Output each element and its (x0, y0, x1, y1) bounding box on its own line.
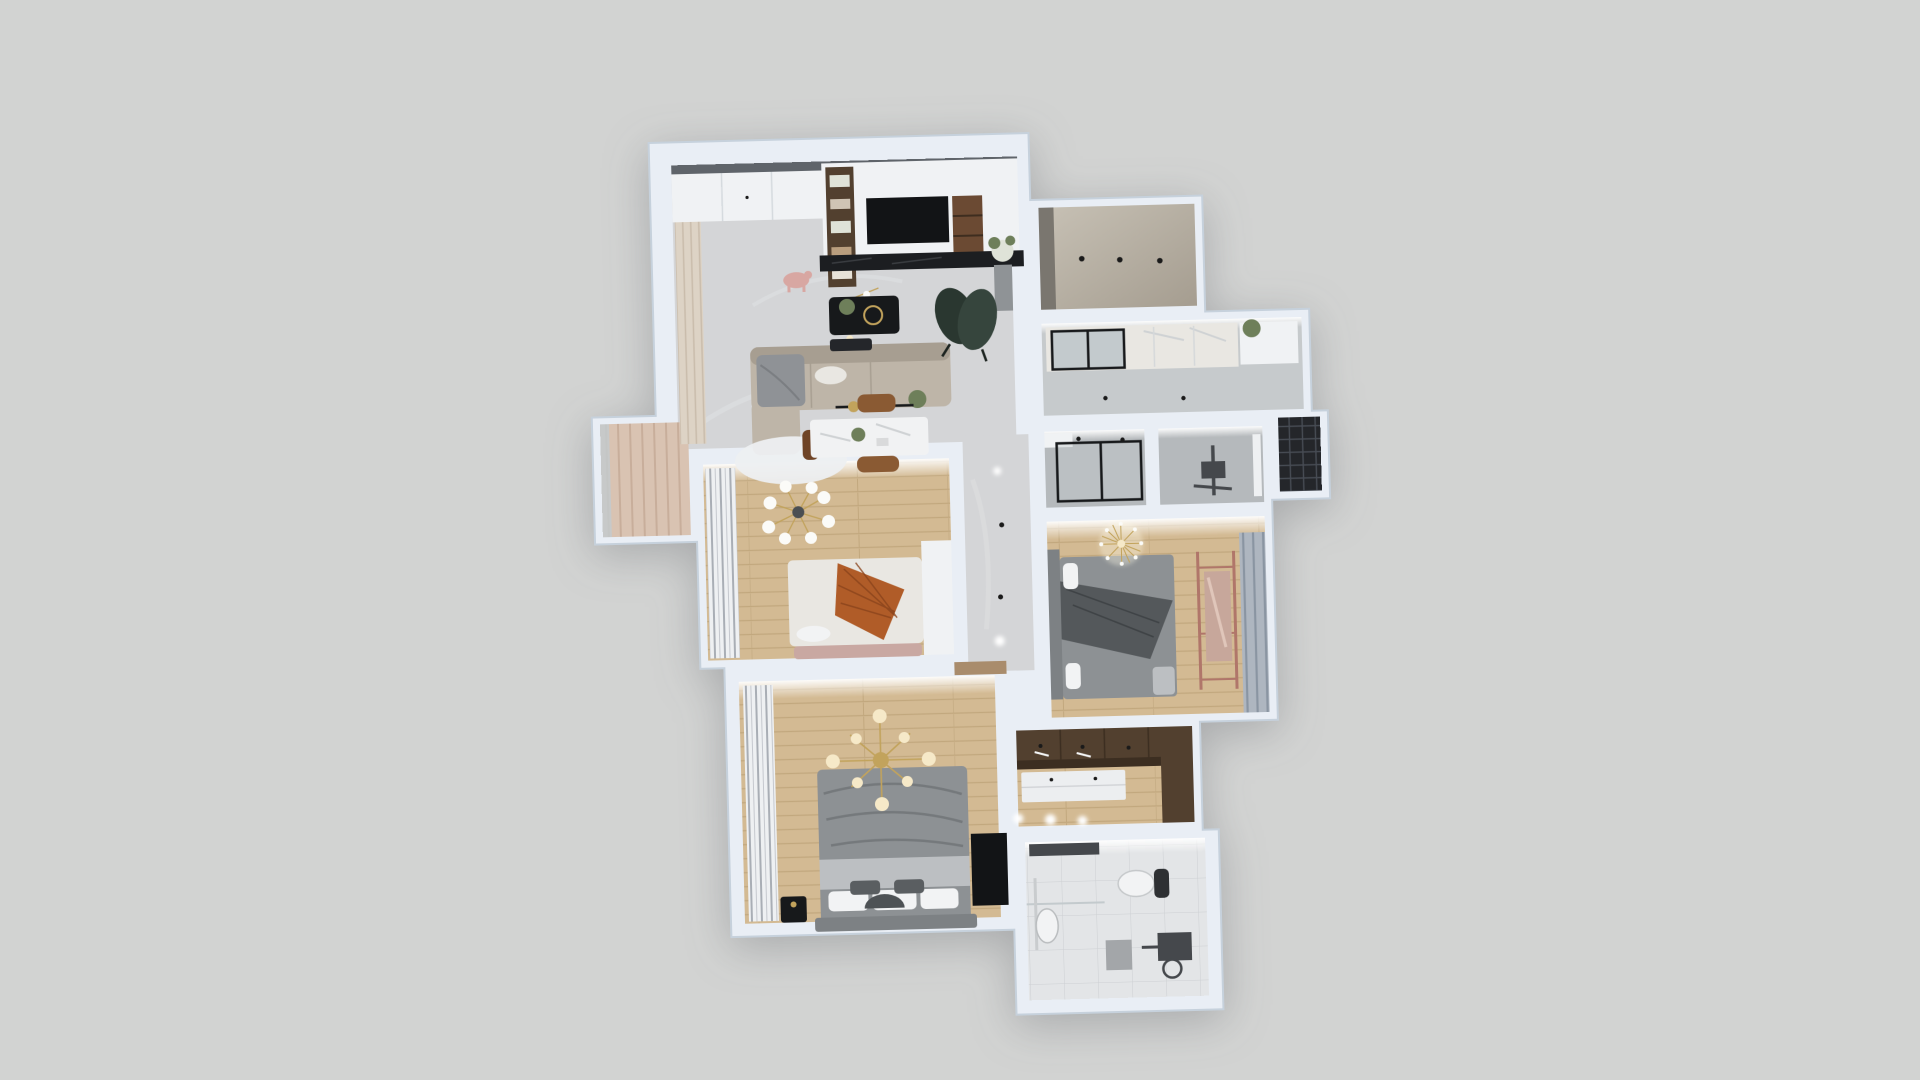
bath-dark-shelf (1029, 842, 1099, 856)
render-canvas (0, 0, 1920, 1080)
tv-side-shelf (952, 195, 984, 254)
entry-wardrobe (671, 170, 822, 222)
shower-bathroom-details (1044, 431, 1142, 501)
floorplan-svg (0, 0, 1920, 1080)
tv-panel-master (971, 833, 1009, 906)
toilet (1118, 869, 1170, 899)
nightstand (780, 896, 807, 923)
room-drying-balcony (1278, 417, 1322, 492)
bed-master (811, 766, 977, 932)
room-multipurpose (1038, 204, 1197, 310)
shower-mat (1106, 940, 1133, 971)
shower-glass-screen (1057, 441, 1142, 501)
room-balcony (600, 422, 691, 537)
mirror-bar (1035, 878, 1037, 950)
kitchen-glass-cabinet (1052, 330, 1125, 370)
guest-curtains (1239, 532, 1270, 713)
shower-head (1201, 461, 1225, 479)
floorplan-viewport[interactable] (0, 0, 1920, 1080)
dining-chair (857, 394, 895, 413)
tv-screen (866, 196, 949, 244)
bathroom-sink (1036, 909, 1059, 944)
bed-small (788, 557, 925, 659)
bed-guest (1060, 554, 1178, 699)
master-bedroom-door (954, 661, 1006, 675)
bedroom-small-curtains (705, 468, 740, 659)
master-curtains (743, 685, 779, 922)
dining-table (810, 417, 929, 458)
wardrobe-right (1161, 756, 1195, 823)
dining-chair (857, 456, 899, 473)
closet-dresser (1021, 770, 1126, 803)
bedroom-small-wardrobe (921, 540, 954, 655)
